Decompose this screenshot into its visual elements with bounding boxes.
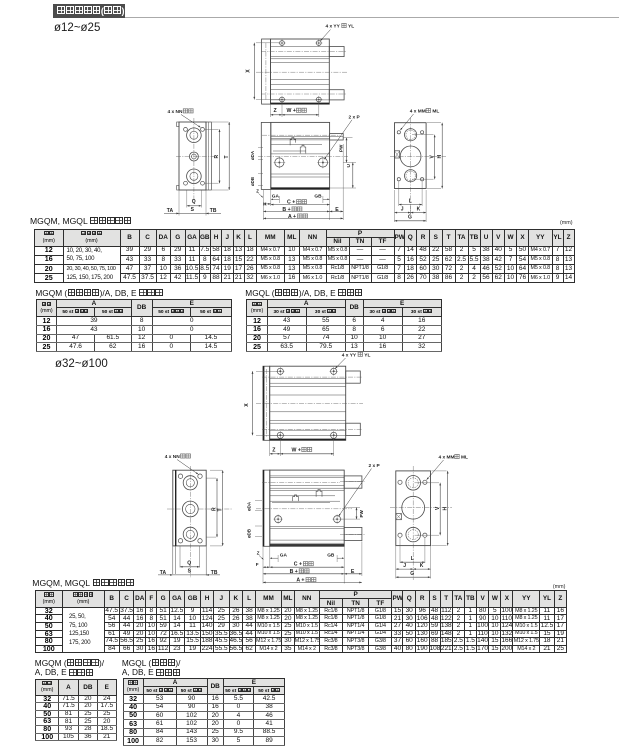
svg-text:K: K [417, 206, 421, 212]
svg-text:K: K [420, 563, 424, 569]
svg-text:4 x YY: 4 x YY [342, 352, 357, 358]
svg-text:Q: Q [192, 199, 196, 205]
svg-text:T: T [224, 155, 230, 158]
svg-text:øDB: øDB [247, 529, 252, 538]
svg-text:A +: A + [296, 578, 304, 584]
svg-text:TA: TA [167, 208, 174, 214]
svg-text:ML: ML [461, 455, 468, 461]
svg-text:4 x MM: 4 x MM [410, 109, 426, 115]
svg-text:S: S [191, 207, 195, 213]
svg-text:øDA: øDA [247, 501, 252, 511]
svg-text:G: G [410, 571, 414, 577]
svg-text:X: X [246, 69, 252, 73]
svg-text:2 x P: 2 x P [369, 463, 381, 469]
svg-text:TB: TB [211, 570, 218, 576]
svg-text:L: L [409, 198, 412, 204]
svg-text:T: T [217, 508, 223, 511]
svg-text:GA: GA [280, 552, 288, 558]
svg-text:W +: W + [292, 447, 301, 453]
svg-text:V: V [435, 506, 441, 510]
svg-text:X: X [244, 403, 250, 407]
svg-text:C +: C + [294, 562, 302, 568]
svg-text:4 x NN: 4 x NN [165, 454, 180, 460]
svg-text:L: L [411, 556, 414, 562]
svg-text:4 x MM: 4 x MM [439, 455, 455, 461]
svg-text:YL: YL [348, 24, 354, 30]
svg-text:W +: W + [287, 108, 296, 114]
svg-text:PW: PW [339, 144, 344, 152]
svg-text:J: J [403, 563, 406, 569]
svg-text:H: H [437, 155, 443, 159]
svg-text:4 x YY: 4 x YY [326, 24, 341, 30]
svg-text:øDA: øDA [250, 150, 255, 160]
svg-text:R: R [214, 155, 220, 159]
svg-text:Z: Z [256, 189, 259, 194]
svg-text:Z: Z [272, 447, 276, 453]
svg-text:J: J [401, 206, 404, 212]
svg-text:G: G [408, 215, 412, 221]
svg-text:E: E [335, 207, 339, 213]
svg-text:PW: PW [359, 509, 364, 517]
svg-text:YL: YL [364, 352, 370, 358]
svg-text:4 x NN: 4 x NN [168, 109, 183, 115]
svg-text:øDB: øDB [250, 177, 255, 186]
svg-text:GB: GB [314, 194, 322, 200]
svg-text:Q: Q [187, 560, 191, 566]
svg-text:U: U [346, 164, 352, 168]
svg-text:Z: Z [274, 108, 278, 114]
svg-text:2 x P: 2 x P [349, 114, 361, 120]
svg-text:F: F [256, 562, 259, 567]
svg-text:GB: GB [327, 552, 335, 558]
svg-text:ML: ML [432, 109, 439, 115]
svg-text:B +: B + [282, 207, 290, 213]
svg-text:A +: A + [288, 214, 296, 220]
svg-text:TB: TB [210, 208, 217, 214]
svg-text:H: H [442, 507, 448, 511]
svg-text:S: S [188, 569, 192, 575]
svg-text:Z: Z [257, 551, 260, 556]
svg-text:TA: TA [160, 570, 167, 576]
